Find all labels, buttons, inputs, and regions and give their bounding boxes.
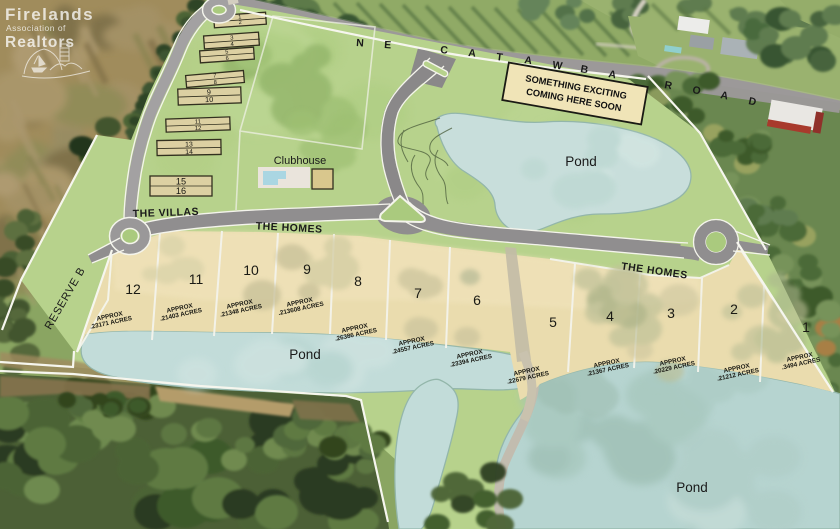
svg-text:W: W (552, 59, 564, 72)
svg-text:Association of: Association of (6, 23, 66, 33)
svg-text:Firelands: Firelands (5, 5, 94, 24)
svg-text:3: 3 (667, 305, 675, 321)
svg-text:THE VILLAS: THE VILLAS (133, 206, 200, 220)
svg-text:4: 4 (606, 308, 614, 324)
svg-text:Pond: Pond (565, 154, 597, 169)
svg-text:E: E (384, 39, 392, 51)
svg-text:8: 8 (214, 80, 218, 86)
svg-text:12: 12 (125, 281, 141, 297)
svg-text:N: N (356, 37, 364, 50)
svg-text:12: 12 (195, 126, 203, 132)
svg-text:9: 9 (303, 261, 311, 277)
svg-text:Clubhouse: Clubhouse (274, 155, 327, 167)
svg-text:Pond: Pond (289, 347, 321, 362)
svg-text:2: 2 (730, 301, 738, 317)
svg-text:Pond: Pond (676, 480, 708, 495)
svg-text:1: 1 (802, 319, 810, 335)
svg-text:13: 13 (185, 141, 193, 148)
svg-text:10: 10 (243, 262, 259, 278)
svg-text:11: 11 (189, 271, 204, 287)
svg-text:14: 14 (185, 149, 193, 156)
svg-text:2: 2 (238, 20, 242, 26)
svg-text:16: 16 (176, 186, 186, 196)
svg-text:7: 7 (213, 73, 217, 79)
svg-text:10: 10 (205, 95, 214, 104)
svg-text:7: 7 (414, 285, 422, 301)
svg-text:8: 8 (354, 273, 362, 289)
svg-text:6: 6 (226, 56, 230, 62)
svg-text:15: 15 (176, 177, 186, 187)
svg-text:5: 5 (225, 49, 229, 55)
svg-text:11: 11 (195, 119, 202, 125)
svg-text:5: 5 (549, 314, 557, 330)
svg-text:6: 6 (473, 292, 481, 308)
